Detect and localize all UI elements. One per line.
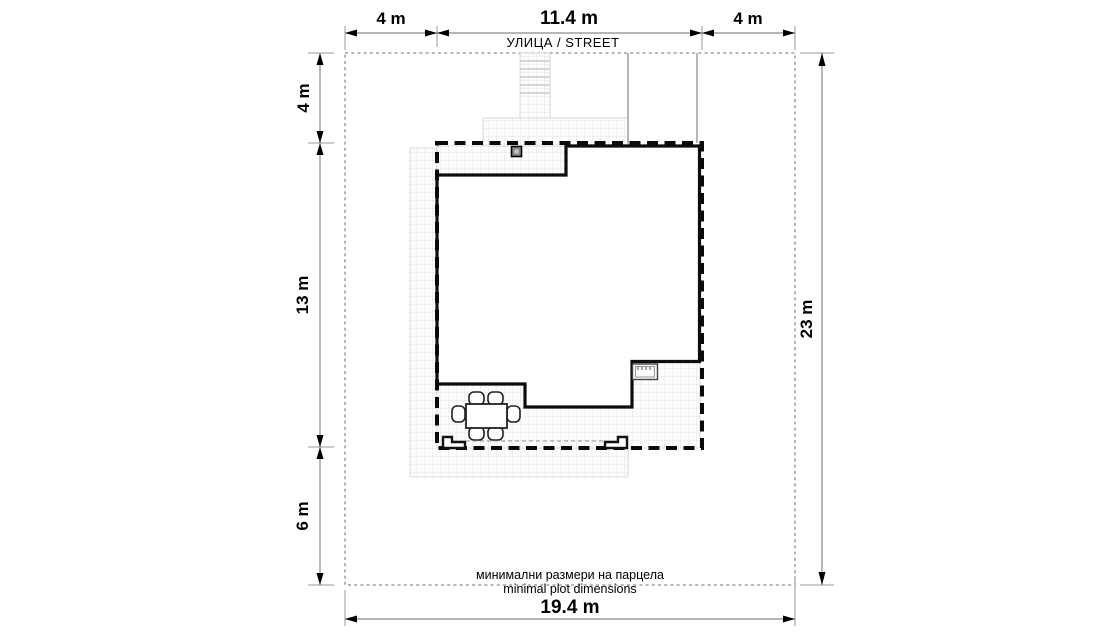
dining-table — [466, 404, 507, 428]
site-plan: 4 m 11.4 m 4 m УЛИЦА / STREET 4 m 13 m 6… — [0, 0, 1120, 632]
dimension-right: 23 m — [797, 53, 834, 585]
chair — [469, 427, 484, 440]
dim-label-top-mid: 11.4 m — [540, 8, 598, 29]
dimension-left: 4 m 13 m 6 m — [293, 53, 334, 585]
dim-label-left-top: 4 m — [294, 83, 313, 112]
chair — [469, 392, 484, 405]
porch-paving — [437, 146, 565, 175]
dim-label-bottom: 19.4 m — [540, 597, 599, 618]
chair — [452, 406, 465, 422]
site-plan-drawing: 4 m 11.4 m 4 m УЛИЦА / STREET 4 m 13 m 6… — [0, 0, 1120, 632]
street-label: УЛИЦА / STREET — [506, 35, 619, 50]
dim-label-top-right: 4 m — [733, 9, 762, 28]
chair — [507, 406, 520, 422]
entrance-plaza-paving — [483, 118, 628, 146]
dim-label-left-mid: 13 m — [293, 276, 312, 315]
porch-column-cap — [515, 150, 519, 154]
plot-note-en: minimal plot dimensions — [503, 582, 636, 596]
dim-label-top-left: 4 m — [376, 9, 405, 28]
chair — [488, 392, 503, 405]
terrace-grill — [633, 364, 658, 380]
dim-label-left-bottom: 6 m — [293, 501, 312, 530]
plot-note-bg: минимални размери на парцела — [476, 568, 664, 582]
chair — [488, 427, 503, 440]
dim-label-right: 23 m — [797, 300, 816, 339]
